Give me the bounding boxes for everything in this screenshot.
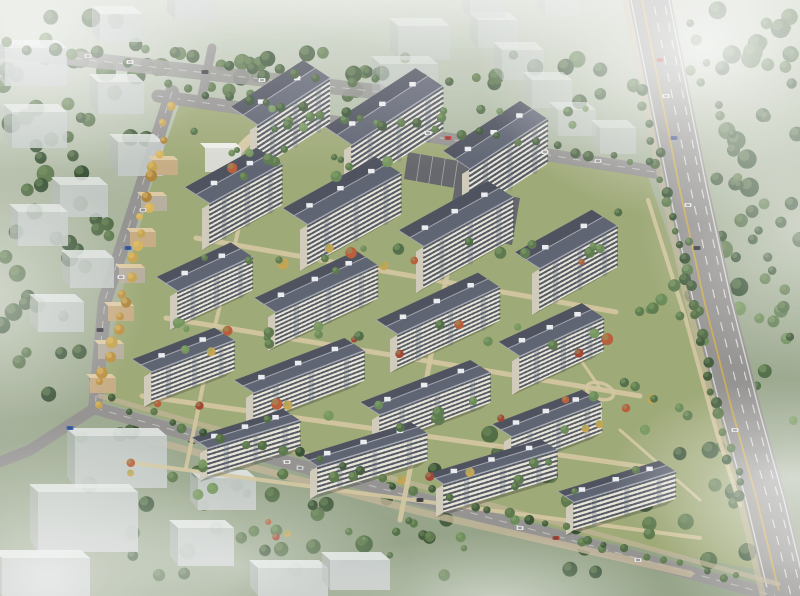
context-building bbox=[389, 18, 450, 60]
car bbox=[125, 246, 132, 250]
context-building bbox=[166, 0, 215, 20]
car bbox=[284, 460, 291, 464]
car bbox=[663, 94, 670, 98]
rendering-canvas bbox=[0, 0, 800, 596]
car bbox=[517, 526, 524, 530]
context-building bbox=[0, 550, 90, 596]
context-building bbox=[461, 0, 506, 18]
car bbox=[259, 78, 266, 82]
car bbox=[445, 136, 452, 140]
car bbox=[671, 136, 678, 140]
car bbox=[657, 58, 664, 62]
context-building bbox=[9, 204, 68, 246]
car bbox=[417, 498, 424, 502]
context-building bbox=[3, 104, 67, 148]
context-building bbox=[66, 428, 167, 488]
car bbox=[685, 203, 692, 207]
car bbox=[140, 208, 147, 212]
car bbox=[635, 558, 642, 562]
context-building bbox=[29, 484, 138, 552]
car bbox=[425, 131, 432, 135]
aerial-rendering-viewport bbox=[0, 0, 800, 596]
context-building bbox=[91, 6, 142, 42]
car bbox=[202, 70, 209, 74]
context-building bbox=[169, 520, 234, 566]
context-building bbox=[591, 120, 636, 154]
context-building bbox=[321, 552, 390, 590]
context-building bbox=[61, 250, 114, 288]
car bbox=[118, 275, 125, 279]
car bbox=[97, 328, 104, 332]
context-building bbox=[249, 560, 328, 596]
car bbox=[127, 60, 134, 64]
car bbox=[542, 150, 549, 154]
car bbox=[595, 159, 602, 163]
context-building bbox=[549, 102, 596, 136]
car bbox=[553, 536, 560, 540]
car bbox=[85, 54, 92, 58]
car bbox=[732, 428, 739, 432]
context-building bbox=[29, 294, 84, 332]
car bbox=[67, 426, 74, 430]
car bbox=[694, 246, 701, 250]
context-building bbox=[89, 74, 144, 114]
car bbox=[297, 466, 304, 470]
